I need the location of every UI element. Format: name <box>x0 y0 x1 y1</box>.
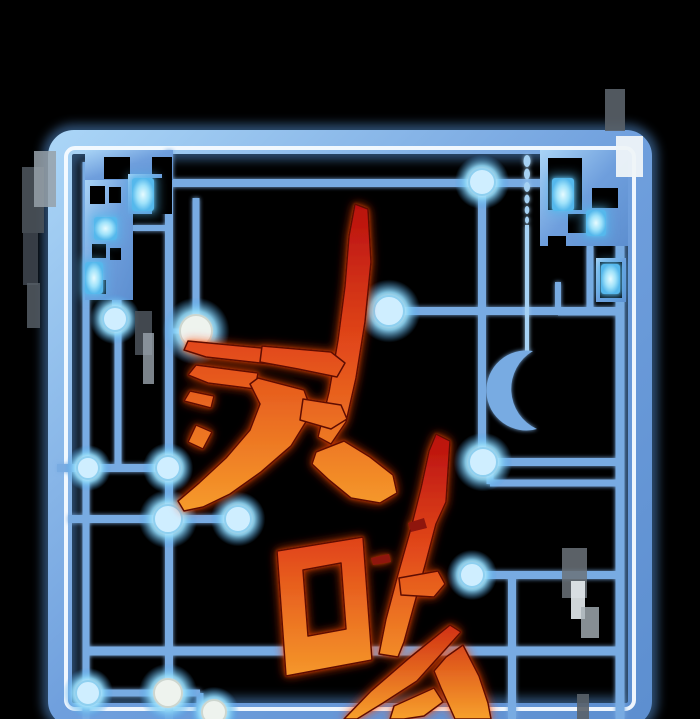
glow-cell <box>85 262 103 294</box>
cyan-node <box>469 448 497 476</box>
cyan-node <box>154 505 182 533</box>
teardrop-bead <box>525 217 529 224</box>
maze-cutout <box>90 186 105 204</box>
teardrop-bead <box>524 155 531 167</box>
glitch-rect <box>34 151 56 207</box>
glitch-rect <box>605 89 625 131</box>
glitch-rect <box>616 136 643 177</box>
teardrop-bead <box>524 169 530 180</box>
white-node <box>202 700 226 719</box>
glitch-rect <box>581 607 599 638</box>
teardrop-bead <box>525 206 530 214</box>
glitch-rect <box>143 333 154 384</box>
cyan-node <box>77 457 99 479</box>
cyan-node <box>103 307 127 331</box>
glitch-rect <box>577 694 589 719</box>
cyan-node <box>469 169 495 195</box>
glitch-rect <box>27 283 40 328</box>
cyan-node <box>156 456 180 480</box>
glow-cell <box>94 217 117 240</box>
cyan-node <box>460 563 484 587</box>
maze-cutout <box>548 236 566 246</box>
glow-cell <box>586 210 606 236</box>
cover-illustration <box>0 0 700 719</box>
glow-cell <box>601 264 620 294</box>
maze-cutout <box>110 248 121 260</box>
maze-cutout <box>109 187 121 203</box>
teardrop-bead <box>524 182 530 192</box>
glow-cell <box>132 178 154 211</box>
webtoon-cover-art <box>0 0 700 719</box>
maze-cutout <box>592 188 618 208</box>
cyan-node <box>76 681 100 705</box>
white-node <box>154 679 182 707</box>
glitch-rect <box>23 233 38 285</box>
maze-cutout <box>104 157 130 179</box>
teardrop-bead <box>524 195 529 204</box>
cyan-node <box>225 506 251 532</box>
glow-cell <box>552 178 574 211</box>
maze-cutout <box>92 244 106 258</box>
cyan-node <box>374 296 404 326</box>
